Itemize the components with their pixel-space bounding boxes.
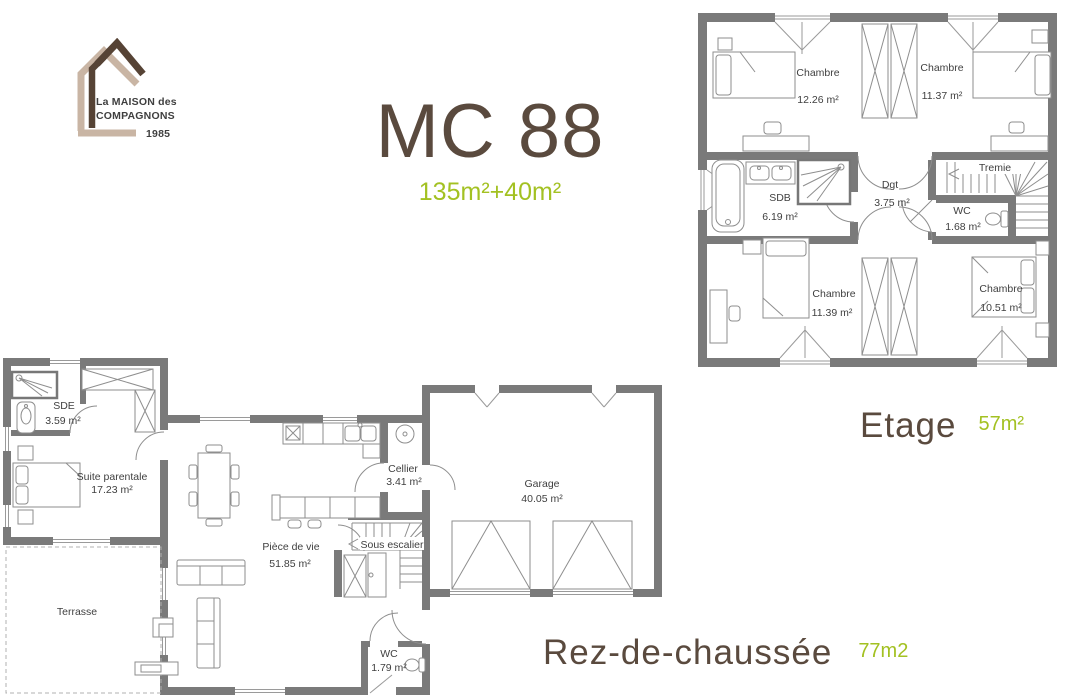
rdc-area: 77m2: [858, 640, 908, 663]
plan-surface-subtitle: 135m²+40m²: [335, 178, 645, 206]
logo-line2: COMPAGNONS: [96, 110, 175, 122]
room-label: Terrasse: [57, 606, 97, 618]
etage-floorplan: Chambre 12.26 m² Chambre 11.37 m² SDB 6.…: [695, 10, 1065, 370]
room-label: Tremie: [979, 162, 1011, 174]
bed-icon: [13, 446, 80, 524]
room-label: SDE: [53, 400, 75, 412]
room-label: Chambre: [979, 283, 1022, 295]
room-label: Chambre: [796, 67, 839, 79]
dining-table-icon: [189, 445, 239, 526]
rdc-furniture: [12, 369, 632, 675]
room-area: 3.59 m²: [45, 415, 81, 427]
plan-title: MC 88: [335, 90, 645, 174]
room-area: 10.51 m²: [980, 302, 1022, 314]
room-area: 17.23 m²: [91, 484, 133, 496]
title-block: MC 88 135m²+40m²: [335, 90, 645, 206]
rdc-label: Rez-de-chaussée: [543, 633, 832, 673]
desk-icon: [368, 553, 386, 597]
room-label: Sous escalier: [360, 539, 424, 551]
company-logo: La MAISON des COMPAGNONS 1985: [68, 38, 248, 150]
room-label: Cellier: [388, 463, 418, 475]
etage-caption: Etage 57m²: [860, 406, 1024, 446]
toilet-icon: [405, 658, 425, 672]
bathtub-icon: [712, 160, 744, 232]
toilet-icon: [986, 211, 1009, 227]
room-area: 1.68 m²: [945, 221, 981, 233]
room-label: SDB: [769, 192, 791, 204]
etage-area: 57m²: [978, 413, 1024, 436]
etage-label: Etage: [860, 406, 956, 446]
garage-door-icon: [553, 521, 632, 589]
room-area: 6.19 m²: [762, 211, 798, 223]
shower-icon: [12, 372, 57, 398]
wardrobe-icon: [82, 369, 155, 432]
rdc-doors: [70, 406, 455, 644]
garage-door-icon: [452, 521, 530, 589]
room-area: 12.26 m²: [797, 94, 839, 106]
bed-icon: [713, 38, 795, 98]
shower-icon: [798, 160, 850, 204]
room-label: Pièce de vie: [262, 541, 319, 553]
desk-icon: [743, 122, 809, 151]
double-sink-icon: [746, 162, 795, 184]
room-label: WC: [380, 648, 398, 660]
logo-year: 1985: [146, 128, 170, 140]
brochure-page: La MAISON des COMPAGNONS 1985 MC 88 135m…: [0, 0, 1070, 700]
bed-icon: [743, 238, 809, 318]
room-label: Dgt: [882, 179, 898, 191]
bed-icon: [973, 30, 1051, 98]
coffee-table-icon: [153, 618, 173, 637]
room-area: 51.85 m²: [269, 558, 311, 570]
logo-line1: La MAISON des: [96, 96, 177, 108]
room-label: Chambre: [812, 288, 855, 300]
washing-machine-icon: [396, 425, 414, 443]
room-area: 11.37 m²: [922, 90, 963, 102]
room-label: Chambre: [920, 62, 963, 74]
desk-icon: [710, 290, 740, 343]
tv-stand-icon: [135, 662, 178, 675]
sofa-icon: [197, 598, 220, 668]
wardrobe-icon: [344, 555, 366, 597]
room-area: 40.05 m²: [521, 493, 563, 505]
room-label: Garage: [524, 478, 559, 490]
washbasin-icon: [17, 402, 35, 433]
room-label: WC: [953, 205, 971, 217]
room-area: 3.41 m²: [386, 476, 422, 488]
sofa-icon: [177, 560, 245, 585]
room-area: 3.75 m²: [874, 197, 910, 209]
room-label: Suite parentale: [77, 471, 148, 483]
room-area: 1.79 m²: [371, 662, 407, 674]
room-area: 11.39 m²: [812, 307, 853, 319]
rdc-caption: Rez-de-chaussée 77m2: [543, 633, 908, 673]
kitchen-counter-icon: [283, 423, 380, 458]
desk-icon: [991, 122, 1048, 151]
